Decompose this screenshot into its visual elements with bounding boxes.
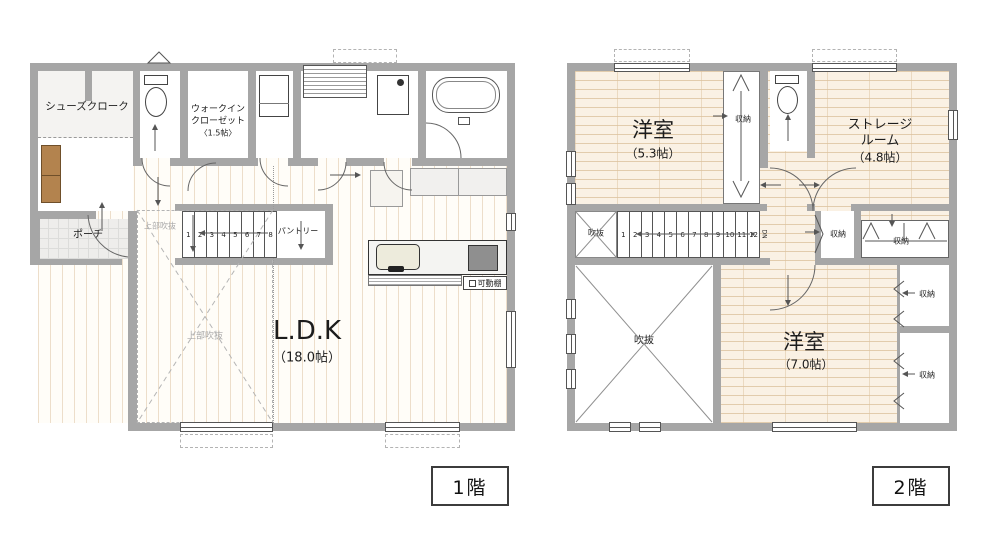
vent-icon [148, 52, 170, 63]
wall [30, 219, 40, 261]
wall [293, 71, 301, 158]
staircase-1f: 1 2 3 4 5 6 7 8 [182, 211, 277, 258]
wash-basin-cabinet [259, 75, 289, 117]
window [948, 110, 958, 140]
void-large-label: 吹抜 [634, 332, 654, 347]
stair-step: 3 [207, 212, 219, 257]
linen-shelf [303, 65, 367, 98]
movable-shelf-box: 可動棚 [463, 276, 507, 290]
window [639, 422, 661, 432]
stair-step: 5 [230, 212, 242, 257]
bedroom1-size-label: （5.3帖） [625, 145, 680, 162]
window [566, 151, 576, 177]
washing-machine-dot [397, 79, 404, 86]
wall [288, 158, 318, 166]
stair-step: 6 [242, 212, 254, 257]
stair-step: 7 [689, 212, 701, 257]
floorplan-page: { "colors": { "wall": "#a6a6a6", "line":… [0, 0, 1000, 550]
floor1-badge: 1階 [431, 466, 509, 506]
stair-step: 11 [736, 212, 748, 257]
stair-step: 7 [254, 212, 266, 257]
stair-step: 4 [653, 212, 665, 257]
wic-label-2: クローゼット [191, 114, 245, 127]
window [506, 213, 516, 231]
stair-step: 10 [724, 212, 736, 257]
movable-shelf-label: 可動棚 [478, 278, 502, 289]
bath-drain [458, 117, 470, 125]
staircase-2f: 1 2 3 4 5 6 7 8 9 10 11 12 [617, 211, 760, 258]
storage-room-size-label: （4.8帖） [852, 149, 907, 166]
window [566, 369, 576, 389]
bedroom2-label: 洋室 [783, 326, 825, 356]
wall [807, 204, 815, 211]
wall [900, 326, 949, 333]
wall [133, 158, 142, 166]
toilet-bowl [145, 87, 167, 117]
wall [507, 63, 515, 431]
stair-step: 3 [642, 212, 654, 257]
wall [575, 204, 767, 211]
window [812, 63, 897, 72]
closet-label-b: 収納 [830, 229, 846, 240]
wall [30, 211, 96, 219]
eave-outline [614, 49, 690, 62]
closet-label-e: 収納 [919, 370, 935, 381]
stair-step: 4 [218, 212, 230, 257]
closet-label-d: 収納 [919, 289, 935, 300]
wall [133, 71, 140, 158]
wall [128, 211, 137, 431]
wall [897, 265, 900, 423]
wall [30, 63, 38, 219]
ldk-label: L.D.K [273, 316, 341, 346]
toilet-tank [775, 75, 799, 84]
window [609, 422, 631, 432]
eave-outline [333, 49, 397, 63]
ldk-divider-line [273, 166, 274, 423]
washing-machine [377, 75, 409, 115]
wall [807, 71, 815, 158]
void-large-label: 上部吹抜 [187, 329, 223, 342]
bathtub-inner [436, 81, 496, 109]
wall [854, 211, 861, 258]
kitchen-cupboard-divider [458, 168, 459, 196]
toilet-tank [144, 75, 168, 85]
wall [713, 265, 721, 423]
floor1-plan: 1 2 3 4 5 6 7 8 可動棚 シューズクローク ウォークイン クローゼ… [30, 63, 515, 431]
shelf-icon [469, 280, 476, 287]
window [566, 183, 576, 205]
stair-step: 8 [701, 212, 713, 257]
counter-front-ledge [368, 275, 462, 286]
wall [30, 63, 515, 71]
bedroom1-closet [723, 71, 760, 204]
wall [851, 204, 949, 211]
wall [418, 71, 426, 158]
shoes-cloak-label: シューズクローク [45, 99, 128, 114]
stair-step: 2 [195, 212, 207, 257]
stair-step: 8 [265, 212, 276, 257]
shoe-cabinet [41, 145, 61, 203]
wall [30, 259, 122, 265]
wall [721, 258, 770, 265]
fridge [370, 170, 403, 207]
eave-outline [180, 434, 273, 448]
void-small-label: 吹抜 [588, 228, 604, 239]
stair-step: 2 [630, 212, 642, 257]
wall [412, 158, 515, 166]
window [566, 299, 576, 319]
closet-label-a: 収納 [735, 114, 751, 125]
kitchen-faucet [388, 266, 404, 272]
wall [346, 158, 384, 166]
bedroom1-label: 洋室 [632, 114, 674, 144]
shoe-cabinet-shelf [41, 175, 61, 176]
stair-step: 12 [748, 212, 759, 257]
wash-basin-line [259, 103, 289, 104]
wall [760, 71, 768, 168]
window [385, 422, 460, 432]
floor2-badge: 2階 [872, 466, 950, 506]
stove [468, 245, 498, 271]
window [506, 311, 516, 368]
stair-step: 5 [665, 212, 677, 257]
eave-outline [385, 434, 460, 448]
stair-step: 9 [713, 212, 725, 257]
window [772, 422, 857, 432]
porch-label: ポーチ [73, 226, 103, 241]
ldk-size-label: （18.0帖） [273, 347, 341, 366]
window [614, 63, 690, 72]
wall [325, 211, 333, 258]
dn-label: DN [761, 229, 768, 238]
stair-step: 1 [618, 212, 630, 257]
window [566, 334, 576, 354]
eave-outline [812, 49, 897, 62]
stair-step: 1 [183, 212, 195, 257]
wall [815, 211, 821, 258]
wall [85, 71, 92, 101]
wall [170, 158, 258, 166]
bedroom2-size-label: （7.0帖） [778, 356, 833, 373]
wall [248, 71, 256, 158]
toilet-bowl [777, 86, 798, 114]
window [180, 422, 273, 432]
wic-size-label: 〈1.5帖〉 [200, 128, 237, 139]
pantry-label: パントリー [278, 226, 318, 237]
stair-step: 6 [677, 212, 689, 257]
storage-room-label-2: ルーム [861, 130, 900, 149]
wall [575, 258, 721, 265]
closet-label-c: 収納 [893, 236, 909, 247]
wall [180, 71, 188, 158]
shoes-cloak-boundary [38, 137, 133, 138]
wall [815, 258, 949, 265]
floor2-plan: 1 2 3 4 5 6 7 8 9 10 11 12 洋室 （5.3帖） ストレ… [567, 63, 957, 431]
void-small-label: 上部吹抜 [144, 221, 176, 232]
